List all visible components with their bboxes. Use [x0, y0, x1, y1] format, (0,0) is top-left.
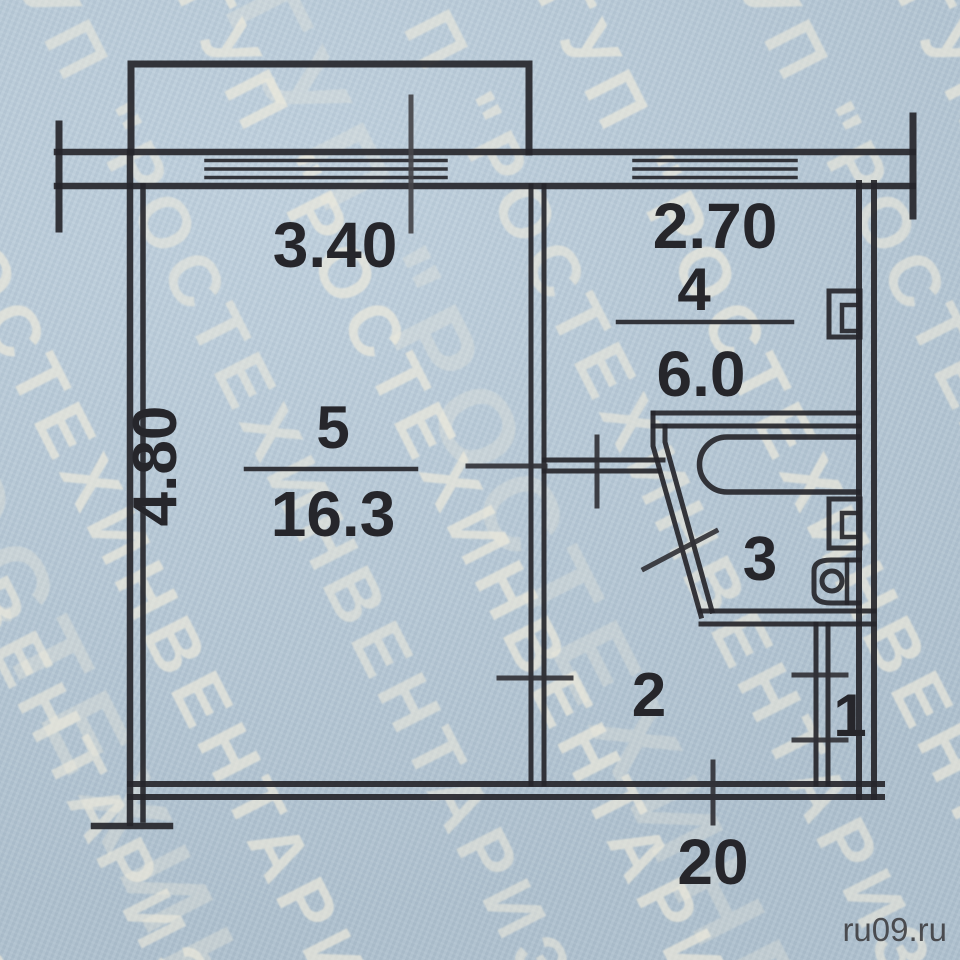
interior-wall-living [531, 186, 544, 784]
scanned-floorplan-photo: ФГУП "РОСТЕХИНВЕНТАРИЗАЦИЯ" ФГУП "РОСТЕХ… [0, 0, 960, 960]
plan-labels: 3.40 2.70 4.80 4 6.0 5 16.3 3 2 1 20 [121, 190, 867, 898]
living-number: 5 [316, 394, 349, 461]
toilet-bowl [822, 571, 842, 591]
vent-shaft-bathroom [829, 499, 860, 548]
window-right [634, 161, 796, 178]
kitchen-area: 6.0 [657, 338, 746, 410]
dim-top-right: 2.70 [653, 190, 778, 262]
living-area: 16.3 [271, 478, 396, 550]
closet-wall [816, 624, 828, 784]
bathroom-number: 3 [743, 525, 777, 594]
interior-wall-kitchen [544, 460, 663, 471]
bathtub [700, 437, 859, 492]
floor-plan-drawing: 3.40 2.70 4.80 4 6.0 5 16.3 3 2 1 20 [0, 0, 960, 960]
door-marks [468, 437, 846, 823]
dim-top-left: 3.40 [273, 209, 398, 281]
dim-left-height: 4.80 [121, 406, 190, 527]
top-wall [57, 97, 913, 231]
vent-glyph-bathroom [842, 513, 856, 537]
balcony-outline [131, 64, 529, 152]
site-watermark: ru09.ru [842, 911, 947, 949]
vent-glyph-kitchen [842, 305, 856, 331]
hallway-number: 2 [632, 661, 666, 730]
bottom-wall [130, 784, 882, 797]
closet-number: 1 [833, 682, 866, 749]
apartment-number: 20 [677, 826, 748, 898]
kitchen-number: 4 [677, 256, 711, 323]
